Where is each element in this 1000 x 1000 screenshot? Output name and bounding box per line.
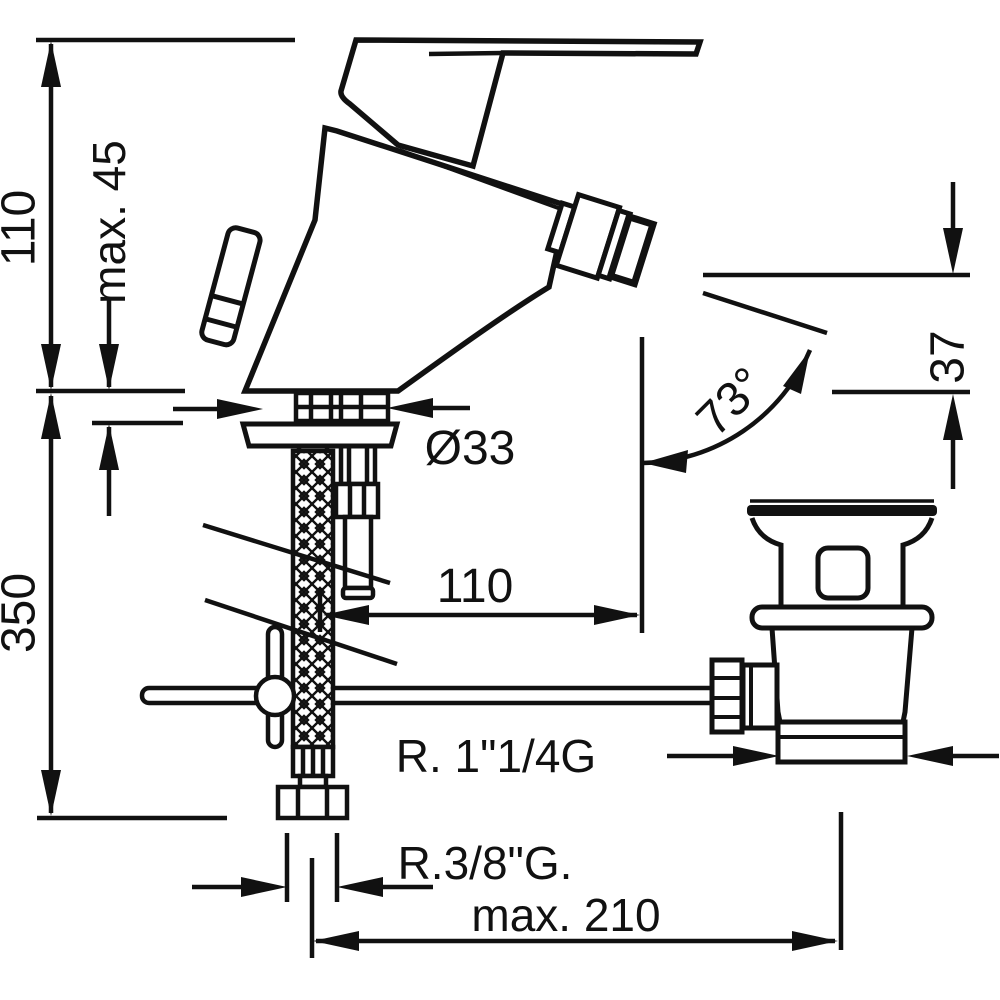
label-rod-reach: max. 210 — [471, 889, 660, 941]
label-outlet-height: 37 — [922, 330, 975, 383]
arrow-up-icon — [41, 41, 61, 87]
arrow-left-icon — [907, 746, 953, 766]
label-outlet-angle: 73° — [687, 358, 776, 447]
label-spout-projection: 110 — [437, 560, 514, 613]
technical-drawing: 110 max. 45 350 Ø33 110 — [0, 0, 1000, 1000]
arrow-up-icon — [943, 394, 963, 440]
arrow-right-icon — [733, 746, 779, 766]
arrow-right-icon — [594, 605, 640, 625]
label-hole-diameter: Ø33 — [425, 422, 516, 475]
arrow-left-icon — [313, 931, 359, 951]
drain-assembly — [712, 501, 937, 762]
label-below-deck-depth: 350 — [0, 573, 46, 653]
drain-tailpiece — [778, 722, 905, 762]
label-total-height: 110 — [0, 190, 46, 267]
arrow-down-icon — [41, 770, 61, 816]
dimension-total-height: 110 — [0, 40, 295, 390]
drain-body — [772, 628, 912, 722]
dimension-deck-thickness: max. 45 — [36, 140, 185, 516]
drain-collar — [752, 607, 932, 628]
pop-up-vertical-rod — [256, 627, 294, 747]
arrow-right-icon — [217, 399, 263, 419]
arrow-up-icon — [41, 393, 61, 439]
dimension-outlet-angle: 73° — [643, 293, 827, 473]
arrow-right-icon — [241, 877, 287, 897]
aerator — [544, 191, 655, 290]
arrow-right-icon — [792, 931, 838, 951]
arrow-down-icon — [943, 228, 963, 274]
clamping-flange — [243, 424, 397, 446]
hose-nut — [278, 787, 347, 818]
arrow-up-right-icon — [783, 350, 810, 394]
mounting-shank — [296, 393, 388, 421]
drain-square-port — [818, 548, 868, 598]
label-supply-thread: R.3/8"G. — [398, 837, 573, 889]
arrow-left-icon — [387, 398, 433, 418]
label-deck-thickness: max. 45 — [83, 140, 135, 304]
arrow-left-icon — [337, 877, 383, 897]
arrow-left-icon — [643, 450, 688, 473]
drain-side-connector — [743, 665, 777, 728]
label-waste-thread: R. 1"1/4G — [396, 730, 596, 782]
arrow-down-icon — [41, 344, 61, 390]
faucet-body — [245, 128, 568, 391]
pop-up-horizontal-rod — [142, 688, 742, 703]
pipe-nut — [336, 484, 378, 517]
ball-joint — [256, 677, 294, 715]
drain-pull-knob — [200, 226, 262, 347]
drawing-canvas: 110 max. 45 350 Ø33 110 — [0, 0, 1000, 1000]
drain-cap — [747, 505, 937, 516]
arrow-up-icon — [99, 424, 119, 470]
dimension-outlet-height: 37 — [703, 182, 975, 489]
arrow-down-icon — [99, 344, 119, 390]
